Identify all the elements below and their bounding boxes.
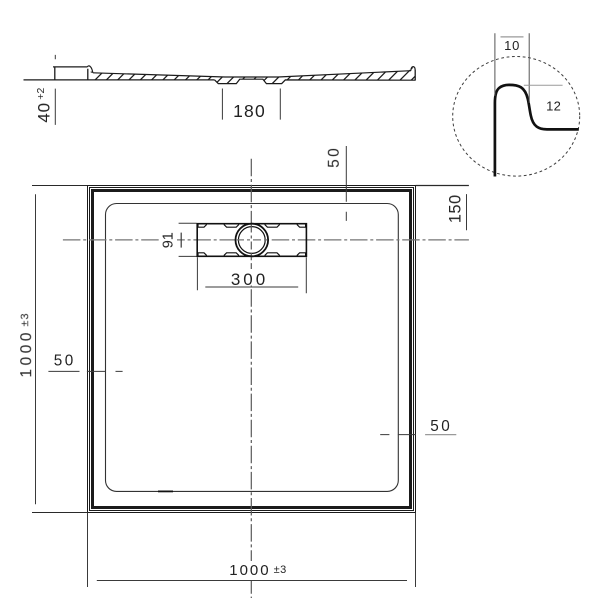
svg-text:180: 180 — [233, 101, 266, 121]
svg-text:12: 12 — [546, 98, 561, 113]
svg-text:10: 10 — [504, 38, 520, 53]
svg-text:50: 50 — [54, 353, 76, 370]
svg-text:150: 150 — [446, 194, 464, 223]
svg-text:91: 91 — [161, 232, 177, 248]
svg-text:50: 50 — [430, 418, 452, 435]
svg-text:300: 300 — [231, 270, 268, 289]
svg-text:50: 50 — [326, 146, 343, 168]
